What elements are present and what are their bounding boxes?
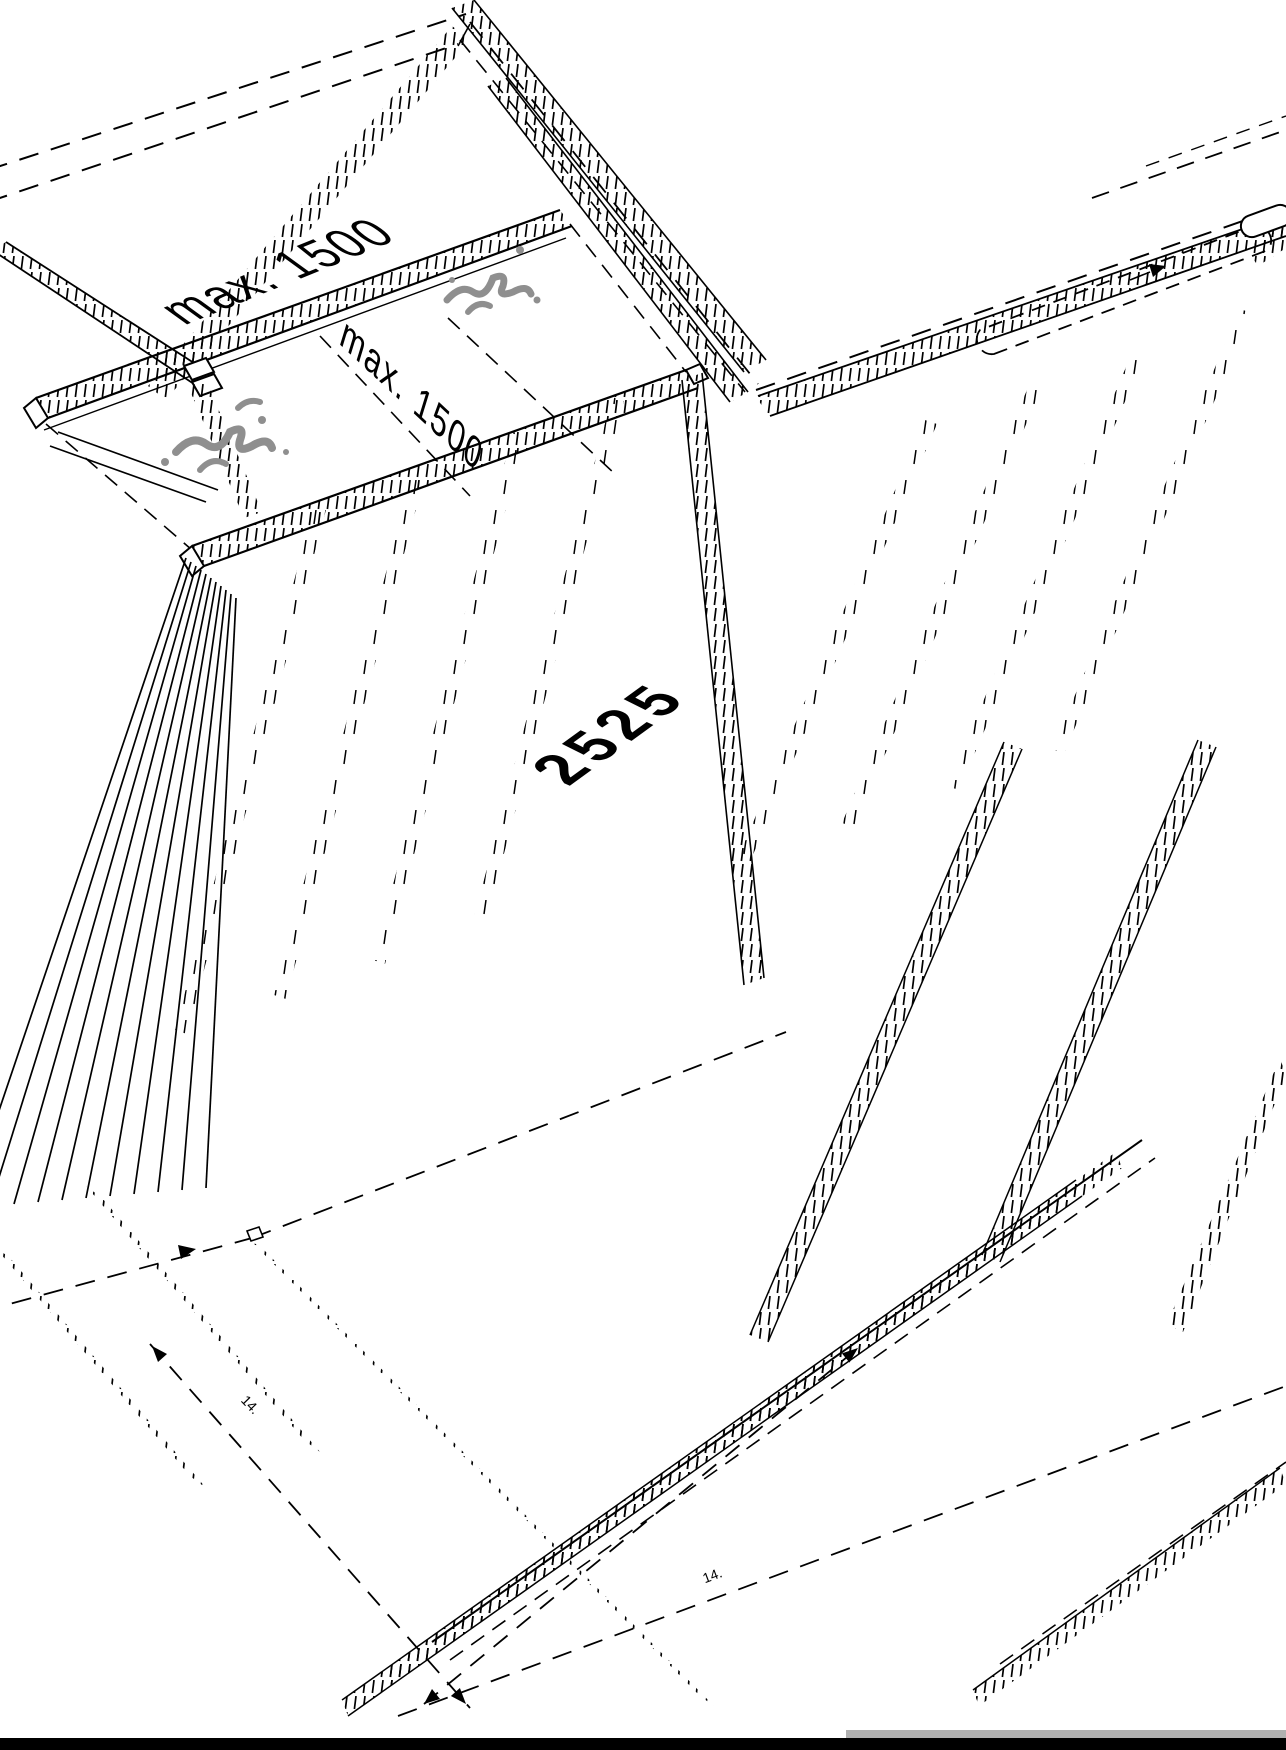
- dimension-arrow: [178, 1245, 196, 1259]
- hidden-bottom-edge: [398, 1386, 1286, 1716]
- spray-dot: [516, 246, 524, 254]
- surface-hatch-strip: [472, 397, 624, 929]
- rail-profile-line: [50, 446, 206, 502]
- left-panel-edge-stack: [0, 558, 236, 1208]
- panel-seam-hatch: [682, 373, 764, 985]
- panel-edge-line: [973, 1468, 1280, 1690]
- hidden-edge-line: [1146, 116, 1286, 166]
- panel-edge-hatch-band: [973, 1468, 1286, 1706]
- hidden-connector-line: [46, 424, 192, 550]
- surface-hatch-strip: [274, 467, 426, 999]
- spray-dot: [161, 458, 169, 466]
- tick-note-left: 14.: [238, 1392, 263, 1417]
- dimension-arrow: [152, 1346, 167, 1362]
- panel-edge-line: [38, 570, 201, 1202]
- panel-edge-hatch-band: [452, 0, 766, 372]
- hidden-bottom-edge: [252, 1032, 786, 1238]
- spray-dot: [534, 297, 541, 304]
- bottom-panels: 14. 14.: [0, 1140, 1286, 1716]
- isometric-panel-drawing: max. 1500 max. 1500: [0, 0, 1286, 1750]
- panel-edge-line: [758, 214, 1286, 396]
- spray-dot: [283, 449, 289, 455]
- corner-mark: [247, 1227, 263, 1241]
- middle-fixing-rail: [180, 364, 708, 576]
- hidden-bottom-edge: [0, 1238, 252, 1312]
- panel-edge-line: [14, 566, 196, 1204]
- center-panel: 2525: [0, 373, 1286, 1342]
- drawing-canvas: max. 1500 max. 1500: [0, 0, 1286, 1750]
- surface-hatch-strip: [373, 432, 525, 964]
- hidden-top-edge: [756, 206, 1286, 390]
- panel-edge-line: [452, 8, 744, 372]
- surface-hatch-strip: [737, 420, 937, 864]
- footer: [0, 1730, 1286, 1750]
- tick-note-right: 14.: [700, 1564, 724, 1586]
- panel-edge-line: [110, 582, 216, 1196]
- hidden-edge-line: [1092, 130, 1286, 198]
- spray-squiggle: [238, 401, 260, 408]
- hidden-edge-line: [0, 14, 466, 170]
- footer-black-bar: [0, 1738, 1286, 1750]
- spray-squiggle: [468, 304, 490, 312]
- panel-edge-hatch-band: [1167, 1058, 1286, 1332]
- panel-edge-line: [750, 742, 1004, 1335]
- hatch-tick-row: [0, 1246, 206, 1488]
- surface-hatch-strip: [1052, 309, 1252, 753]
- panel-edge-line: [432, 1140, 1142, 1642]
- panel-edge-line: [342, 1180, 1076, 1700]
- spray-dot: [258, 416, 266, 424]
- panel-edge-line: [134, 586, 221, 1194]
- panel-edge-line: [474, 0, 766, 360]
- dimension-arrow: [451, 1688, 466, 1704]
- hatch-tick-row: [250, 1240, 714, 1706]
- seam-edge-line: [702, 373, 764, 978]
- panel-edge-line: [62, 574, 206, 1200]
- spray-squiggle: [447, 276, 531, 300]
- panel-edge-line: [0, 558, 186, 1208]
- surface-hatch-strip: [947, 346, 1147, 790]
- seam-edge-line: [682, 380, 744, 985]
- panel-edge-line: [0, 562, 191, 1206]
- panel-edge-line: [1000, 747, 1216, 1262]
- hidden-edge-line: [1000, 1462, 1286, 1664]
- spray-dot: [449, 277, 455, 283]
